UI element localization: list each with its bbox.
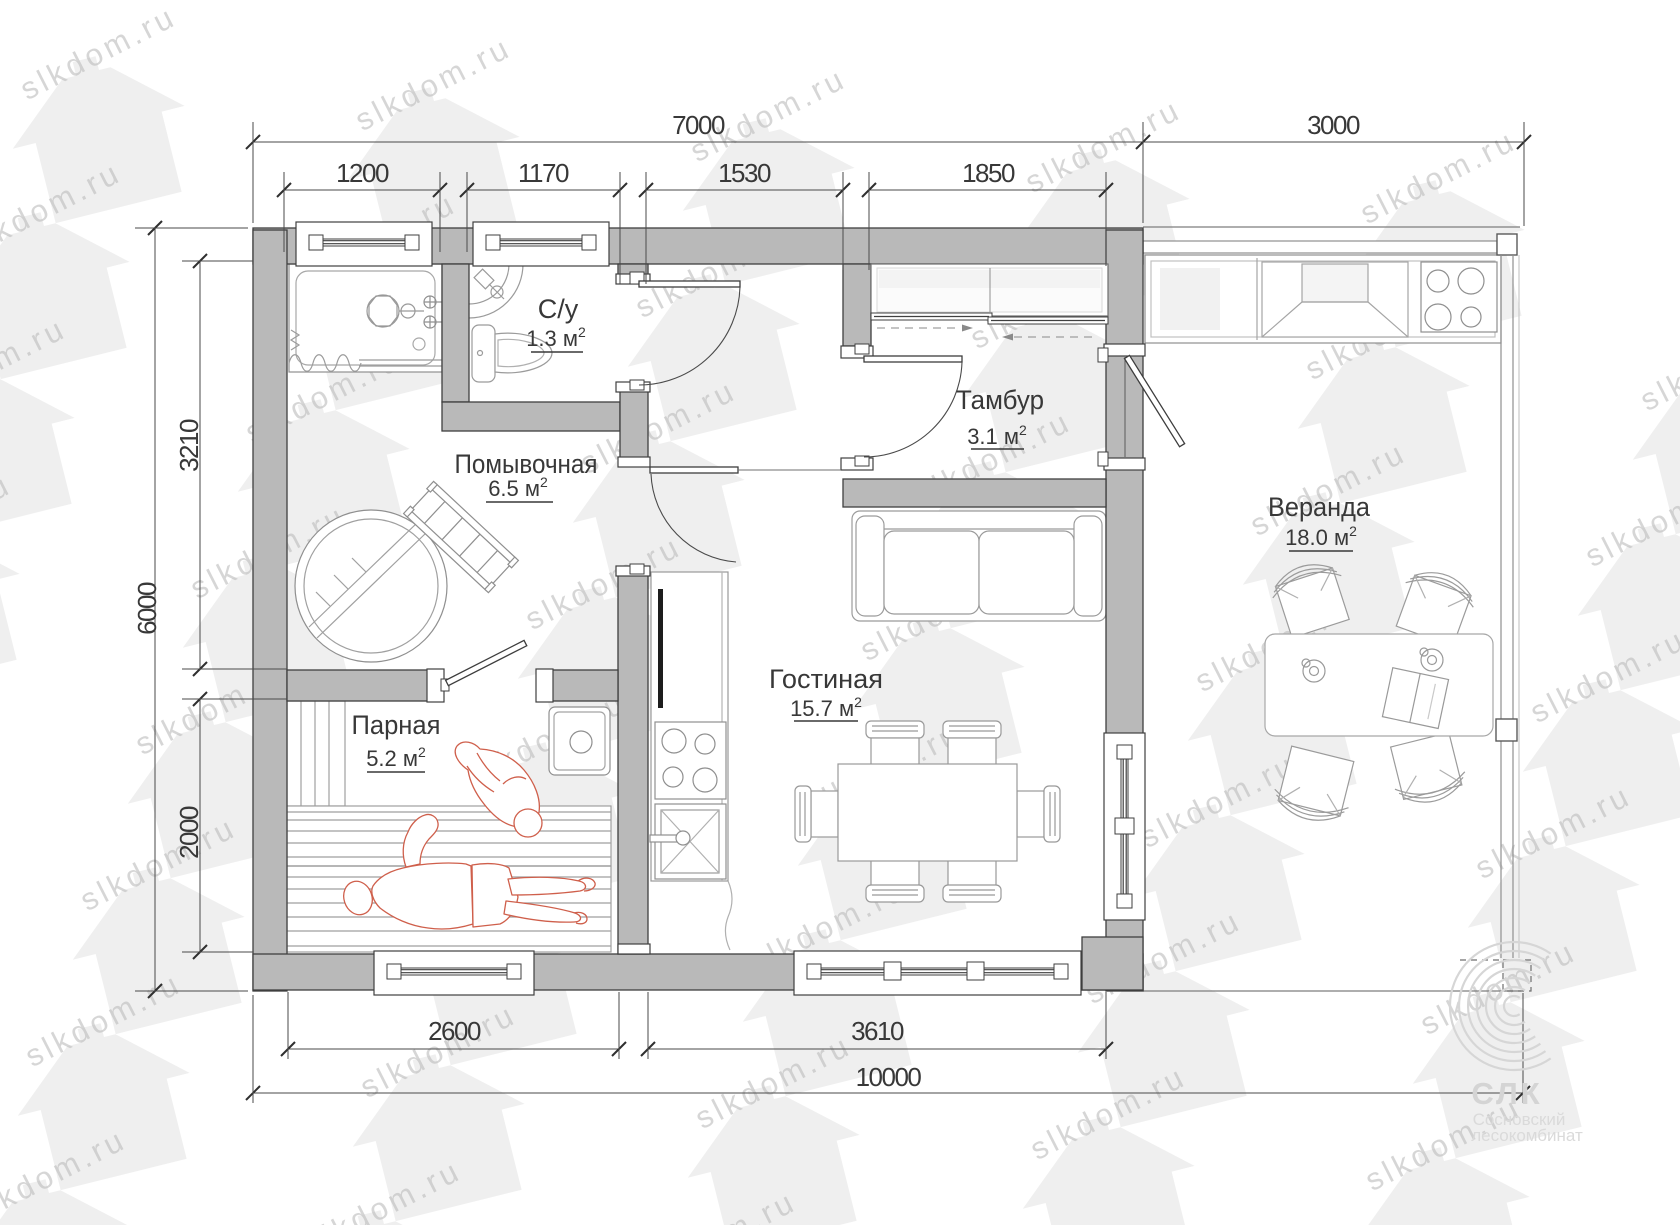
svg-text:7000: 7000 — [672, 110, 725, 140]
svg-text:3210: 3210 — [174, 419, 204, 472]
svg-text:1850: 1850 — [962, 158, 1015, 188]
svg-text:1170: 1170 — [518, 158, 569, 188]
svg-text:15.7 м2: 15.7 м2 — [790, 694, 862, 721]
svg-text:3000: 3000 — [1307, 110, 1360, 140]
svg-text:2600: 2600 — [428, 1016, 481, 1046]
svg-text:6000: 6000 — [132, 582, 162, 635]
svg-text:1.3 м2: 1.3 м2 — [526, 324, 586, 351]
svg-text:С/у: С/у — [538, 294, 579, 324]
svg-text:1200: 1200 — [336, 158, 389, 188]
svg-text:СЛК: СЛК — [1471, 1076, 1542, 1111]
svg-text:лесокомбинат: лесокомбинат — [1471, 1126, 1583, 1145]
svg-text:3610: 3610 — [851, 1016, 904, 1046]
svg-text:Веранда: Веранда — [1268, 492, 1371, 522]
svg-text:6.5 м2: 6.5 м2 — [488, 474, 548, 501]
svg-text:Гостиная: Гостиная — [769, 664, 883, 694]
svg-text:3.1 м2: 3.1 м2 — [967, 422, 1027, 449]
svg-text:Тамбур: Тамбур — [956, 385, 1044, 415]
svg-text:18.0 м2: 18.0 м2 — [1285, 523, 1357, 550]
svg-text:Парная: Парная — [352, 710, 441, 740]
svg-text:5.2 м2: 5.2 м2 — [366, 744, 426, 771]
svg-text:Помывочная: Помывочная — [455, 449, 598, 479]
svg-text:2000: 2000 — [174, 806, 204, 859]
svg-text:1530: 1530 — [718, 158, 771, 188]
svg-text:10000: 10000 — [856, 1062, 922, 1092]
